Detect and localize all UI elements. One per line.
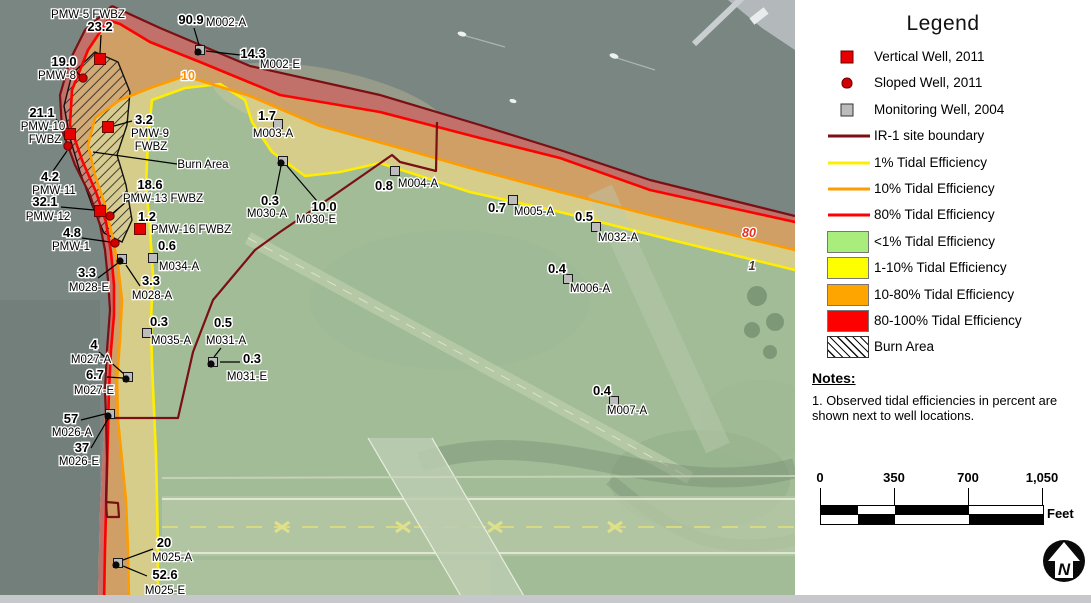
- vertical-well-marker: [65, 129, 76, 140]
- legend-item: <1% Tidal Efficiency: [795, 229, 1091, 255]
- well-name-label: M026-A: [52, 427, 93, 439]
- tidal-efficiency-map-figure: PMW-5 FWBZ23.290.9M002-A14.3M002-E19.0PM…: [0, 0, 1091, 603]
- scale-segment: [969, 515, 1043, 524]
- well-value-label: 4.2: [41, 169, 59, 184]
- well-value-label: 20: [157, 535, 171, 550]
- well-name-label: M034-A: [159, 261, 200, 273]
- well-name-label: PMW-8: [38, 70, 76, 82]
- well-value-label: 1.2: [138, 209, 156, 224]
- line-swatch: [828, 214, 870, 217]
- legend-item-label: 1-10% Tidal Efficiency: [874, 260, 1007, 275]
- scale-label: 0: [816, 470, 823, 485]
- well-value-label: 0.4: [593, 383, 612, 398]
- fill-swatch: [827, 284, 869, 306]
- scale-label: 350: [883, 470, 905, 485]
- notes-block: Notes: 1. Observed tidal efficiencies in…: [812, 370, 1080, 423]
- well-value-label: 6.7: [86, 367, 104, 382]
- legend-item-label: 10% Tidal Efficiency: [874, 181, 995, 196]
- well-value-label: 0.4: [548, 261, 567, 276]
- well-value-label: 0.5: [214, 315, 232, 330]
- legend-item: Monitoring Well, 2004: [795, 97, 1091, 123]
- contour-value-label: 80: [742, 226, 756, 240]
- legend-item: 10% Tidal Efficiency: [795, 176, 1091, 202]
- legend-panel: Legend Vertical Well, 2011Sloped Well, 2…: [795, 0, 1091, 603]
- scale-label: 1,050: [1026, 470, 1059, 485]
- well-name-label: M025-A: [152, 552, 193, 564]
- line-swatch: [828, 161, 870, 164]
- scale-tick: [894, 488, 895, 505]
- scale-tick: [820, 488, 821, 505]
- well-name-label: M026-E: [59, 456, 100, 468]
- contour-value-label: 10: [181, 69, 195, 83]
- page-edge-strip: [0, 595, 1091, 603]
- fill-swatch: [827, 257, 869, 279]
- legend-item: IR-1 site boundary: [795, 123, 1091, 149]
- well-name-label: M035-A: [151, 335, 192, 347]
- well-name-label: PMW-9: [131, 128, 169, 140]
- legend-item-label: 80% Tidal Efficiency: [874, 207, 995, 222]
- scale-tick: [968, 488, 969, 505]
- legend-item-label: <1% Tidal Efficiency: [874, 234, 995, 249]
- map-canvas: PMW-5 FWBZ23.290.9M002-A14.3M002-E19.0PM…: [0, 0, 795, 603]
- well-value-label: 21.1: [29, 105, 54, 120]
- contour-value-label: 1: [749, 259, 756, 273]
- notes-title: Notes:: [812, 370, 1080, 386]
- legend-item: 80-100% Tidal Efficiency: [795, 308, 1091, 334]
- co-located-well-dot: [207, 360, 214, 367]
- well-value-label: 23.2: [87, 19, 112, 34]
- well-name-label: M007-A: [607, 405, 648, 417]
- well-value-label: 10.0: [311, 199, 336, 214]
- well-value-label: 18.6: [137, 177, 162, 192]
- sloped-well-marker: [106, 212, 114, 220]
- scale-segment: [821, 515, 858, 524]
- well-value-label: 0.3: [261, 193, 279, 208]
- well-value-label: 32.1: [32, 194, 57, 209]
- well-name-label: M030-E: [296, 214, 337, 226]
- legend-item-label: Burn Area: [874, 339, 934, 354]
- legend-item: Vertical Well, 2011: [795, 44, 1091, 70]
- well-value-label: 57: [64, 411, 78, 426]
- red-dot-swatch: [842, 78, 853, 89]
- legend-item-label: Monitoring Well, 2004: [874, 102, 1004, 117]
- scale-segment: [895, 515, 969, 524]
- monitoring-well-marker: [509, 196, 518, 205]
- well-name-label: M028-E: [69, 282, 110, 294]
- well-value-label: 0.5: [575, 209, 593, 224]
- well-name-label: M030-A: [247, 208, 288, 220]
- scale-unit-label: Feet: [1047, 506, 1074, 521]
- scale-bar-row2: [820, 514, 1044, 525]
- well-value-label: 4: [90, 337, 98, 352]
- hatch-swatch: [827, 336, 869, 358]
- well-value-label: 52.6: [152, 567, 177, 582]
- well-value-label: 3.3: [142, 273, 160, 288]
- well-name-label: M002-A: [206, 17, 247, 29]
- legend-item-label: Vertical Well, 2011: [874, 49, 985, 64]
- legend-item-label: IR-1 site boundary: [874, 128, 984, 143]
- well-name-label: M002-E: [260, 59, 301, 71]
- well-value-label: 0.8: [375, 178, 393, 193]
- legend-item: 1% Tidal Efficiency: [795, 150, 1091, 176]
- legend-item-label: 1% Tidal Efficiency: [874, 154, 987, 169]
- vertical-well-marker: [103, 122, 114, 133]
- well-value-label: 0.3: [243, 351, 261, 366]
- well-name-label: PMW-12: [26, 211, 71, 223]
- co-located-well-dot: [277, 159, 284, 166]
- well-value-label: 90.9: [178, 12, 203, 27]
- svg-text:N: N: [1058, 560, 1071, 579]
- co-located-well-dot: [112, 561, 119, 568]
- well-name-label: PMW-10: [21, 121, 66, 133]
- well-name-label: M031-A: [206, 335, 247, 347]
- legend-item-label: 10-80% Tidal Efficiency: [874, 286, 1014, 301]
- gray-square-swatch: [841, 103, 854, 116]
- well-name-label: PMW-16 FWBZ: [151, 224, 231, 236]
- scale-label: 700: [957, 470, 979, 485]
- map-area: PMW-5 FWBZ23.290.9M002-A14.3M002-E19.0PM…: [0, 0, 795, 603]
- notes-body: 1. Observed tidal efficiencies in percen…: [812, 393, 1080, 423]
- legend-item: Burn Area: [795, 334, 1091, 360]
- well-name-label: FWBZ: [135, 141, 168, 153]
- fill-swatch: [827, 231, 869, 253]
- well-name-label: M027-A: [71, 354, 112, 366]
- well-name-label: PMW-13 FWBZ: [123, 193, 203, 205]
- well-value-label: 19.0: [51, 54, 76, 69]
- fill-swatch: [827, 310, 869, 332]
- well-value-label: 0.6: [158, 238, 176, 253]
- well-value-label: 3.3: [78, 265, 96, 280]
- well-value-label: 4.8: [63, 225, 81, 240]
- well-name-label: FWBZ: [29, 134, 62, 146]
- line-swatch: [828, 135, 870, 138]
- legend-title: Legend: [795, 12, 1091, 36]
- co-located-well-dot: [194, 48, 201, 55]
- line-swatch: [828, 188, 870, 191]
- sloped-well-marker: [111, 239, 119, 247]
- well-name-label: M003-A: [253, 128, 294, 140]
- legend-item: 10-80% Tidal Efficiency: [795, 282, 1091, 308]
- vertical-well-marker: [95, 54, 106, 65]
- well-name-label: PMW-1: [52, 241, 90, 253]
- legend-item-label: Sloped Well, 2011: [874, 75, 982, 90]
- co-located-well-dot: [122, 375, 129, 382]
- well-name-label: M006-A: [570, 283, 611, 295]
- well-name-label: M004-A: [398, 178, 439, 190]
- well-name-label: M005-A: [514, 206, 555, 218]
- co-located-well-dot: [104, 412, 111, 419]
- scale-bar: 03507001,050 Feet: [795, 470, 1091, 530]
- legend-item: Sloped Well, 2011: [795, 70, 1091, 96]
- well-name-label: M032-A: [598, 232, 639, 244]
- north-arrow-icon: N: [1041, 538, 1087, 584]
- scale-tick: [1042, 488, 1043, 505]
- legend-item-label: 80-100% Tidal Efficiency: [874, 313, 1022, 328]
- legend-item: 80% Tidal Efficiency: [795, 202, 1091, 228]
- well-name-label: M031-E: [227, 371, 268, 383]
- scale-segment: [858, 515, 895, 524]
- vertical-well-marker: [95, 206, 106, 217]
- monitoring-well-marker: [149, 254, 158, 263]
- well-name-label: M027-E: [74, 385, 115, 397]
- well-value-label: 1.7: [258, 108, 276, 123]
- monitoring-well-marker: [391, 167, 400, 176]
- legend-item: 1-10% Tidal Efficiency: [795, 255, 1091, 281]
- well-value-label: 3.2: [135, 112, 153, 127]
- well-value-label: 0.7: [488, 200, 506, 215]
- red-square-swatch: [841, 51, 854, 64]
- well-name-label: Burn Area: [177, 159, 229, 171]
- well-value-label: 0.3: [150, 314, 168, 329]
- well-name-label: M028-A: [132, 290, 173, 302]
- co-located-well-dot: [116, 257, 123, 264]
- vertical-well-marker: [135, 224, 146, 235]
- sloped-well-marker: [64, 142, 72, 150]
- sloped-well-marker: [79, 74, 87, 82]
- well-value-label: 37: [75, 440, 89, 455]
